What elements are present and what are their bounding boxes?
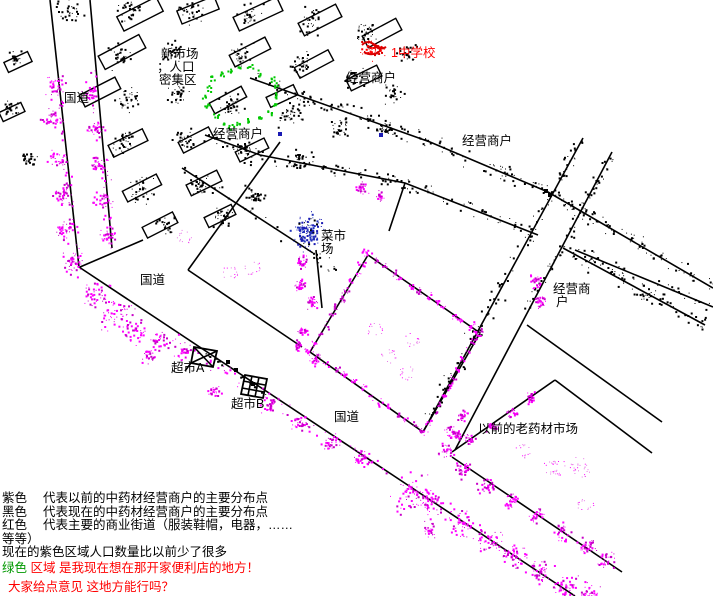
- speckle-dot: [228, 225, 230, 227]
- speckle-dot: [292, 105, 294, 107]
- speckle-dot: [295, 285, 296, 286]
- speckle-dot: [251, 11, 252, 12]
- speckle-dot: [303, 101, 305, 103]
- speckle-dot: [539, 513, 541, 515]
- speckle-dot: [254, 386, 256, 388]
- speckle-dot: [77, 276, 79, 278]
- speckle-dot: [181, 352, 183, 354]
- speckle-dot: [137, 325, 139, 327]
- speckle-dot: [468, 526, 469, 527]
- speckle-dot: [110, 217, 112, 219]
- speckle-dot: [394, 354, 395, 355]
- speckle-dot: [561, 251, 563, 253]
- speckle-dot: [252, 208, 254, 210]
- speckle-dot: [555, 583, 557, 585]
- speckle-dot: [542, 517, 543, 518]
- speckle-dot: [581, 141, 583, 143]
- speckle-dot: [570, 150, 572, 152]
- speckle-dot: [215, 388, 217, 390]
- speckle-dot: [360, 176, 362, 178]
- speckle-dot: [297, 418, 299, 420]
- speckle-dot: [554, 461, 555, 462]
- speckle-dot: [382, 402, 384, 404]
- speckle-dot: [419, 289, 421, 291]
- speckle-dot: [189, 25, 190, 26]
- speckle-dot: [642, 242, 643, 243]
- speckle-dot: [464, 411, 466, 413]
- speckle-dot: [451, 511, 452, 512]
- speckle-dot: [70, 274, 72, 276]
- speckle-dot: [62, 200, 63, 201]
- speckle-dot: [117, 42, 119, 44]
- speckle-dot: [340, 298, 342, 300]
- speckle-dot: [139, 341, 141, 343]
- speckle-dot: [228, 210, 229, 211]
- speckle-dot: [355, 379, 357, 381]
- legend-line-red: 红色 代表主要的商业街道（服装鞋帽，电器，……: [2, 517, 293, 532]
- speckle-dot: [316, 254, 318, 256]
- speckle-dot: [445, 306, 446, 307]
- speckle-dot: [464, 420, 466, 422]
- speckle-dot: [302, 424, 304, 426]
- speckle-dot: [298, 115, 300, 117]
- speckle-dot: [168, 347, 170, 349]
- speckle-dot: [300, 329, 302, 331]
- speckle-dot: [172, 92, 174, 94]
- speckle-dot: [466, 350, 467, 351]
- speckle-dot: [67, 243, 69, 245]
- green-ring: [202, 98, 204, 100]
- speckle-dot: [227, 268, 228, 269]
- speckle-dot: [195, 185, 197, 187]
- speckle-dot: [490, 536, 492, 538]
- speckle-dot: [69, 223, 71, 225]
- speckle-dot: [578, 504, 579, 505]
- speckle-dot: [104, 294, 106, 296]
- speckle-dot: [282, 115, 283, 116]
- speckle-dot: [440, 512, 442, 514]
- speckle-dot: [284, 119, 286, 121]
- speckle-dot: [417, 290, 418, 291]
- speckle-dot: [376, 259, 377, 260]
- speckle-dot: [452, 430, 453, 431]
- speckle-dot: [429, 507, 430, 508]
- speckle-dot: [9, 107, 11, 109]
- speckle-dot: [663, 253, 664, 254]
- speckle-dot: [472, 522, 474, 524]
- speckle-dot: [214, 187, 216, 189]
- speckle-dot: [67, 10, 68, 11]
- speckle-dot: [453, 508, 455, 510]
- speckle-dot: [445, 445, 446, 446]
- speckle-dot: [261, 158, 263, 160]
- speckle-dot: [574, 470, 575, 471]
- speckle-dot: [135, 327, 136, 328]
- speckle-dot: [514, 226, 516, 228]
- speckle-dot: [59, 193, 60, 194]
- speckle-dot: [11, 105, 12, 106]
- speckle-dot: [310, 303, 311, 304]
- speckle-dot: [247, 155, 248, 156]
- speckle-dot: [120, 103, 122, 105]
- speckle-dot: [358, 264, 360, 266]
- speckle-dot: [433, 193, 434, 194]
- speckle-dot: [294, 60, 296, 62]
- speckle-dot: [258, 73, 259, 74]
- speckle-dot: [306, 259, 308, 261]
- speckle-dot: [65, 154, 66, 155]
- speckle-dot: [63, 157, 64, 158]
- speckle-dot: [702, 329, 704, 331]
- speckle-dot: [378, 53, 380, 55]
- speckle-dot: [385, 120, 387, 122]
- speckle-dot: [308, 426, 310, 428]
- speckle-dot: [437, 499, 439, 501]
- speckle-dot: [475, 332, 477, 334]
- speckle-dot: [131, 2, 132, 3]
- speckle-dot: [300, 76, 301, 77]
- label-laoyaocai: 以前的老药材市场: [478, 421, 578, 436]
- speckle-dot: [458, 415, 459, 416]
- speckle-dot: [306, 157, 307, 158]
- speckle-dot: [353, 383, 354, 384]
- speckle-dot: [541, 209, 542, 210]
- speckle-dot: [536, 570, 538, 572]
- speckle-dot: [568, 251, 569, 252]
- speckle-dot: [223, 215, 224, 216]
- speckle-dot: [128, 148, 129, 149]
- speckle-dot: [107, 331, 108, 332]
- speckle-dot: [348, 290, 350, 292]
- speckle-dot: [572, 158, 573, 159]
- speckle-dot: [670, 302, 672, 304]
- speckle-dot: [295, 96, 296, 97]
- speckle-dot: [307, 352, 309, 354]
- speckle-dot: [513, 408, 514, 409]
- speckle-dot: [50, 155, 52, 157]
- speckle-dot: [653, 257, 655, 259]
- speckle-dot: [363, 384, 364, 385]
- speckle-dot: [145, 331, 146, 332]
- speckle-dot: [131, 92, 132, 93]
- speckle-dot: [661, 254, 663, 256]
- speckle-dot: [186, 3, 188, 5]
- speckle-dot: [437, 304, 438, 305]
- speckle-dot: [340, 440, 342, 442]
- speckle-dot: [375, 51, 376, 52]
- speckle-dot: [370, 47, 372, 49]
- speckle-dot: [316, 223, 318, 225]
- speckle-dot: [59, 163, 60, 164]
- speckle-dot: [416, 487, 417, 488]
- speckle-dot: [591, 250, 593, 252]
- speckle-dot: [363, 249, 365, 251]
- speckle-dot: [68, 11, 69, 12]
- speckle-dot: [307, 101, 309, 103]
- label-jingyingshanghu-2: 经营商户: [346, 70, 396, 85]
- speckle-dot: [400, 91, 402, 93]
- speckle-dot: [104, 187, 105, 188]
- speckle-dot: [449, 518, 450, 519]
- speckle-dot: [584, 250, 586, 252]
- speckle-dot: [481, 328, 483, 330]
- speckle-dot: [122, 316, 123, 317]
- speckle-dot: [363, 466, 365, 468]
- speckle-dot: [532, 566, 533, 567]
- speckle-dot: [48, 108, 49, 109]
- speckle-dot: [251, 157, 252, 158]
- speckle-dot: [317, 243, 318, 244]
- speckle-dot: [582, 548, 583, 549]
- speckle-dot: [132, 189, 133, 190]
- speckle-dot: [459, 439, 461, 441]
- speckle-dot: [511, 507, 512, 508]
- speckle-dot: [124, 21, 125, 22]
- speckle-dot: [564, 246, 565, 247]
- speckle-dot: [96, 128, 97, 129]
- green-ring: [232, 124, 234, 126]
- speckle-dot: [150, 339, 151, 340]
- speckle-dot: [344, 132, 345, 133]
- speckle-dot: [98, 126, 100, 128]
- speckle-dot: [460, 521, 462, 523]
- speckle-dot: [562, 245, 564, 247]
- speckle-dot: [101, 198, 103, 200]
- label-chaoshi-a: 超市A: [171, 360, 205, 375]
- speckle-dot: [61, 133, 63, 135]
- speckle-dot: [123, 61, 125, 63]
- speckle-dot: [709, 288, 710, 289]
- speckle-dot: [376, 173, 378, 175]
- speckle-dot: [34, 159, 36, 161]
- speckle-dot: [216, 391, 217, 392]
- speckle-dot: [361, 386, 362, 387]
- speckle-dot: [299, 345, 301, 347]
- speckle-dot: [66, 271, 68, 273]
- speckle-dot: [433, 408, 435, 410]
- speckle-dot: [524, 548, 525, 549]
- speckle-dot: [191, 137, 192, 138]
- speckle-dot: [490, 174, 492, 176]
- speckle-dot: [578, 470, 579, 471]
- green-ring: [271, 112, 273, 114]
- speckle-dot: [619, 266, 620, 267]
- speckle-dot: [370, 115, 372, 117]
- speckle-dot: [245, 56, 246, 57]
- speckle-dot: [319, 166, 320, 167]
- speckle-dot: [430, 530, 431, 531]
- speckle-dot: [101, 321, 103, 323]
- speckle-dot: [400, 508, 401, 509]
- speckle-dot: [570, 590, 571, 591]
- speckle-dot: [358, 451, 359, 452]
- speckle-dot: [443, 199, 444, 200]
- speckle-dot: [126, 3, 127, 4]
- speckle-dot: [207, 176, 208, 177]
- speckle-dot: [90, 296, 92, 298]
- speckle-dot: [499, 292, 500, 293]
- speckle-dot: [65, 192, 67, 194]
- speckle-dot: [137, 95, 138, 96]
- speckle-dot: [614, 558, 615, 559]
- speckle-dot: [583, 214, 585, 216]
- speckle-dot: [401, 138, 403, 140]
- speckle-dot: [315, 356, 316, 357]
- speckle-dot: [312, 362, 314, 364]
- speckle-dot: [313, 360, 315, 362]
- speckle-dot: [362, 54, 363, 55]
- speckle-dot: [413, 421, 415, 423]
- speckle-dot: [367, 50, 368, 51]
- speckle-dot: [182, 90, 184, 92]
- speckle-dot: [109, 226, 111, 228]
- speckle-dot: [196, 18, 198, 20]
- speckle-dot: [583, 551, 584, 552]
- speckle-dot: [121, 143, 123, 145]
- speckle-dot: [516, 552, 518, 554]
- speckle-dot: [198, 183, 200, 185]
- speckle-dot: [585, 211, 587, 213]
- speckle-dot: [6, 114, 7, 115]
- speckle-dot: [460, 472, 462, 474]
- speckle-dot: [451, 532, 453, 534]
- speckle-dot: [95, 100, 96, 101]
- label-jingyingshanghu-3: 经营商户: [462, 133, 512, 148]
- speckle-dot: [77, 256, 79, 258]
- speckle-dot: [66, 183, 68, 185]
- speckle-dot: [451, 383, 453, 385]
- speckle-dot: [360, 189, 361, 190]
- green-ring: [214, 79, 216, 81]
- speckle-dot: [550, 270, 551, 271]
- speckle-dot: [603, 179, 604, 180]
- speckle-dot: [196, 188, 198, 190]
- speckle-dot: [204, 191, 206, 193]
- speckle-dot: [228, 103, 230, 105]
- speckle-dot: [23, 158, 25, 160]
- speckle-dot: [65, 162, 66, 163]
- speckle-dot: [428, 533, 430, 535]
- speckle-dot: [508, 416, 509, 417]
- speckle-dot: [439, 455, 440, 456]
- speckle-dot: [491, 291, 493, 293]
- speckle-dot: [608, 227, 610, 229]
- speckle-dot: [561, 537, 563, 539]
- speckle-dot: [558, 192, 559, 193]
- speckle-dot: [461, 358, 463, 360]
- speckle-dot: [320, 355, 321, 356]
- speckle-dot: [512, 270, 513, 271]
- speckle-dot: [401, 278, 402, 279]
- speckle-dot: [549, 264, 550, 265]
- speckle-dot: [244, 56, 245, 57]
- speckle-dot: [207, 390, 209, 392]
- speckle-dot: [710, 282, 712, 284]
- speckle-dot: [142, 359, 143, 360]
- speckle-dot: [95, 70, 96, 71]
- speckle-dot: [435, 413, 436, 414]
- speckle-dot: [400, 484, 401, 485]
- speckle-dot: [65, 82, 67, 84]
- speckle-dot: [58, 85, 60, 87]
- speckle-dot: [93, 108, 94, 109]
- speckle-dot: [514, 410, 515, 411]
- speckle-dot: [71, 223, 73, 225]
- speckle-dot: [412, 490, 414, 492]
- speckle-dot: [286, 115, 288, 117]
- speckle-dot: [359, 273, 360, 274]
- speckle-dot: [71, 19, 73, 21]
- speckle-dot: [299, 163, 300, 164]
- speckle-dot: [294, 87, 295, 88]
- speckle-dot: [584, 212, 586, 214]
- speckle-dot: [421, 475, 423, 477]
- speckle-dot: [368, 330, 369, 331]
- speckle-dot: [66, 224, 67, 225]
- speckle-dot: [224, 108, 226, 110]
- speckle-dot: [510, 505, 512, 507]
- speckle-dot: [709, 303, 710, 304]
- speckle-dot: [532, 396, 533, 397]
- speckle-dot: [301, 237, 302, 238]
- speckle-dot: [468, 528, 469, 529]
- speckle-dot: [312, 230, 314, 232]
- speckle-dot: [107, 171, 108, 172]
- speckle-dot: [298, 230, 299, 231]
- speckle-dot: [117, 61, 119, 63]
- speckle-dot: [313, 351, 314, 352]
- green-ring: [207, 90, 209, 92]
- speckle-dot: [60, 89, 61, 90]
- speckle-dot: [268, 405, 269, 406]
- speckle-dot: [623, 283, 624, 284]
- speckle-dot: [370, 28, 372, 30]
- speckle-dot: [277, 226, 279, 228]
- speckle-dot: [300, 217, 301, 218]
- green-ring: [231, 70, 233, 72]
- speckle-dot: [396, 99, 397, 100]
- speckle-dot: [647, 295, 648, 296]
- speckle-dot: [297, 98, 298, 99]
- speckle-dot: [280, 120, 281, 121]
- speckle-dot: [307, 26, 309, 28]
- speckle-dot: [252, 9, 253, 10]
- speckle-dot: [582, 545, 584, 547]
- speckle-dot: [581, 549, 582, 550]
- speckle-dot: [394, 273, 395, 274]
- speckle-dot: [254, 15, 255, 16]
- speckle-dot: [377, 259, 378, 260]
- speckle-dot: [208, 134, 210, 136]
- speckle-dot: [419, 287, 420, 288]
- speckle-dot: [104, 195, 105, 196]
- speckle-dot: [114, 232, 116, 234]
- speckle-dot: [455, 379, 457, 381]
- speckle-dot: [381, 52, 383, 54]
- speckle-dot: [515, 568, 516, 569]
- speckle-dot: [537, 301, 538, 302]
- speckle-dot: [262, 151, 264, 153]
- speckle-dot: [227, 215, 229, 217]
- speckle-dot: [246, 197, 248, 199]
- speckle-dot: [230, 107, 232, 109]
- speckle-dot: [301, 62, 302, 63]
- green-ring: [274, 80, 276, 82]
- speckle-dot: [459, 468, 460, 469]
- speckle-dot: [244, 52, 246, 54]
- speckle-dot: [582, 499, 583, 500]
- speckle-dot: [460, 414, 462, 416]
